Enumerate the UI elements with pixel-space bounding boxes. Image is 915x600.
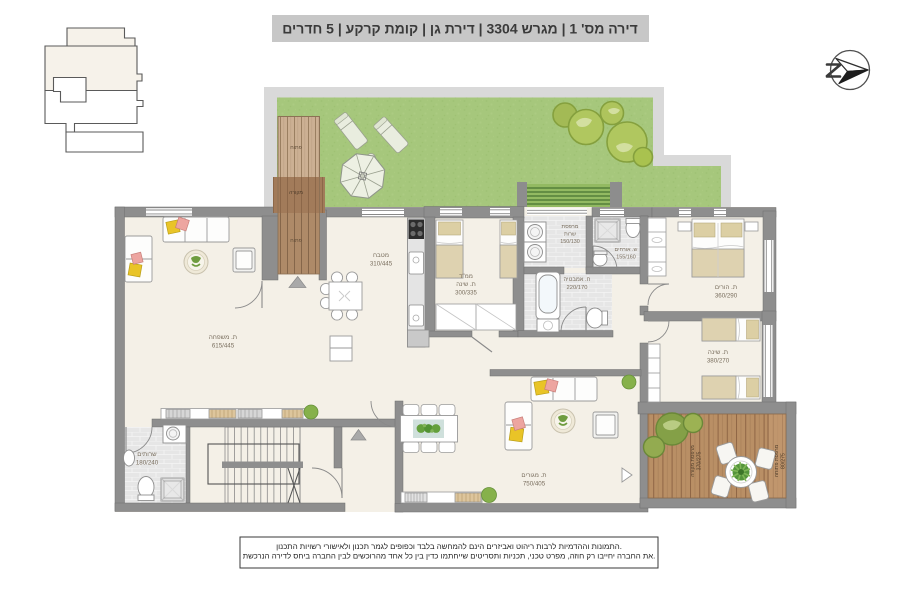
svg-text:ת. משפחה615/445: ת. משפחה615/445 [209,334,237,349]
svg-text:שרותים180/240: שרותים180/240 [136,451,159,466]
svg-text:דירה מס' 1 | מגרש 3304 | דירת: דירה מס' 1 | מגרש 3304 | דירת גן | קומת … [282,21,638,37]
svg-text:ת. מגורים750/405: ת. מגורים750/405 [521,472,546,487]
svg-text:התמונות וההדמיות לרבות ריהוט ו: התמונות וההדמיות לרבות ריהוט ואביזרים הי… [243,542,656,561]
svg-text:ש. אורחים155/160: ש. אורחים155/160 [615,247,638,261]
svg-text:ת. הורים360/290: ת. הורים360/290 [715,284,738,299]
svg-text:פתוח: פתוח [290,145,302,151]
svg-text:ת. שינה380/270: ת. שינה380/270 [707,349,730,364]
svg-text:פתוח: פתוח [290,238,302,244]
svg-text:מקורה: מקורה [289,190,303,196]
